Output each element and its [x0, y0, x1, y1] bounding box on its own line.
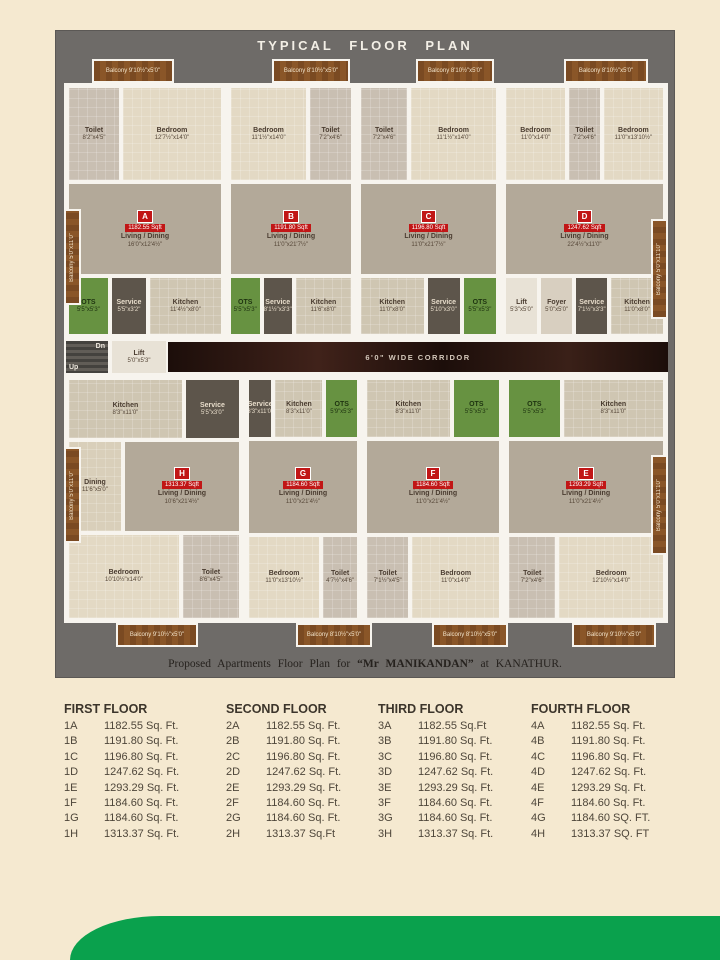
corridor: 6'0" WIDE CORRIDOR [168, 339, 668, 375]
balcony-bottom-e: Balcony 9'10½"x5'0" [572, 623, 656, 647]
room-dim: 11'0"x13'10½" [615, 135, 652, 142]
room-dim: 11'0"x13'10½" [265, 578, 302, 585]
room-name: Kitchen [601, 401, 627, 409]
room-dim: 8'1½"x3'3" [264, 307, 292, 314]
unit-g: Service3'3"x11'0" Kitchen8'3"x11'0" OTS5… [244, 375, 362, 623]
room-living-dining: G 1184.60 Sqft Living / Dining 11'0"x21'… [247, 439, 359, 535]
top-units-row: Toilet8'2"x4'5" Bedroom12'7½"x14'0" A 11… [64, 83, 668, 339]
room-name: Service [116, 299, 141, 307]
unit-f: Kitchen8'3"x11'0" OTS5'5"x5'3" F 1184.60… [362, 375, 504, 623]
floor-plan-panel: TYPICAL FLOOR PLAN Balcony 9'10½"x5'0" B… [55, 30, 675, 678]
stairs-up-label: Up [69, 364, 78, 371]
room-dim: 7'1½"x3'3" [578, 307, 606, 314]
unit-area: 1247.62 Sq. Ft. [266, 765, 378, 780]
unit-area-badge: 1184.60 Sqft [283, 481, 323, 489]
floor-table-title: FIRST FLOOR [64, 702, 226, 716]
unit-area: 1293.29 Sq. Ft. [418, 781, 531, 796]
unit-area: 1191.80 Sq. Ft. [266, 734, 378, 749]
unit-area: 1184.60 Sq. Ft. [418, 796, 531, 811]
room-bedroom: Bedroom12'10½"x14'0" [557, 535, 665, 620]
balcony-bottom-f: Balcony 8'10½"x5'0" [432, 623, 508, 647]
room-name: Living / Dining [562, 490, 610, 498]
unit-area: 1247.62 Sq. Ft. [104, 765, 226, 780]
balcony-top-d: Balcony 8'10½"x5'0" [564, 59, 648, 83]
unit-code: 3F [378, 796, 418, 811]
unit-code: 4D [531, 765, 571, 780]
room-kitchen: Kitchen8'3"x11'0" [365, 378, 452, 439]
plan-caption: Proposed Apartments Floor Plan for “Mr M… [56, 658, 674, 670]
room-dim: 7'2"x4'6" [521, 578, 544, 585]
room-bedroom: Bedroom12'7½"x14'0" [121, 86, 223, 182]
corridor-row: Dn Up Lift 5'0"x5'3" 6'0" WIDE CORRIDOR [64, 339, 668, 375]
floor-area-row: 4F1184.60 Sq. Ft. [531, 796, 676, 811]
floor-table-title: SECOND FLOOR [226, 702, 378, 716]
floor-table-second: SECOND FLOOR 2A1182.55 Sq. Ft.2B1191.80 … [226, 702, 378, 842]
room-dim: 8'6"x4'5" [200, 577, 223, 584]
floor-area-row: 1D1247.62 Sq. Ft. [64, 765, 226, 780]
unit-code: 2F [226, 796, 266, 811]
balcony-label: Balcony 8'10½"x5'0" [428, 68, 482, 75]
room-name: Bedroom [157, 127, 188, 135]
unit-area: 1313.37 Sq.Ft [266, 827, 378, 842]
unit-c: Toilet7'2"x4'6" Bedroom11'1½"x14'0" C 11… [356, 83, 501, 339]
room-name: Toilet [202, 569, 220, 577]
floor-area-row: 4G1184.60 SQ. FT. [531, 811, 676, 826]
unit-area-badge: 1293.29 Sqft [566, 481, 606, 489]
room-dim: 5'5"x5'3" [465, 409, 488, 416]
floor-area-tables: FIRST FLOOR 1A1182.55 Sq. Ft.1B1191.80 S… [64, 702, 676, 842]
room-dim: 10'6"x21'4½" [165, 499, 200, 506]
room-bedroom: Bedroom11'1½"x14'0" [229, 86, 308, 182]
room-lift: Lift 5'0"x5'3" [110, 339, 168, 375]
floor-area-row: 2G1184.60 Sq. Ft. [226, 811, 378, 826]
unit-area: 1184.60 Sq. Ft. [571, 796, 676, 811]
room-dim: 11'0"x14'0" [521, 135, 550, 142]
unit-code: 3D [378, 765, 418, 780]
caption-location: KANATHUR. [496, 658, 562, 670]
floor-area-row: 2D1247.62 Sq. Ft. [226, 765, 378, 780]
balcony-label: Balcony 8'10½"x5'0" [307, 632, 361, 639]
unit-area: 1196.80 Sq. Ft. [266, 750, 378, 765]
unit-b: Bedroom11'1½"x14'0" Toilet7'2"x4'6" B 11… [226, 83, 356, 339]
floor-area-row: 4H1313.37 SQ. FT [531, 827, 676, 842]
room-name: Kitchen [286, 401, 312, 409]
room-name: OTS [527, 401, 541, 409]
unit-code: 1H [64, 827, 104, 842]
room-name: Toilet [523, 570, 541, 578]
room-name: Bedroom [596, 570, 627, 578]
room-dim: 8'3"x11'0" [286, 409, 312, 416]
floor-area-row: 1E1293.29 Sq. Ft. [64, 781, 226, 796]
balcony-label: Balcony 5'0"x11'10" [656, 243, 663, 295]
room-name: Lift [134, 350, 145, 358]
unit-code: 1G [64, 811, 104, 826]
room-dim: 11'6"x5'0" [82, 487, 108, 494]
room-dim: 11'0"x21'7½" [274, 242, 308, 249]
room-name: Bedroom [520, 127, 551, 135]
room-dim: 11'0"x21'4½" [286, 499, 320, 506]
unit-area: 1184.60 Sq. Ft. [104, 811, 226, 826]
room-ots: OTS5'5"x5'3" [507, 378, 562, 439]
room-dim: 12'7½"x14'0" [155, 135, 190, 142]
floor-area-row: 3H1313.37 Sq. Ft. [378, 827, 531, 842]
floor-area-row: 2A1182.55 Sq. Ft. [226, 719, 378, 734]
unit-code: 2A [226, 719, 266, 734]
balcony-label: Balcony 8'10½"x5'0" [579, 68, 633, 75]
balcony-side-h: Balcony 5'0"x11'0" [64, 447, 81, 543]
room-name: Service [248, 401, 273, 409]
room-name: Toilet [575, 127, 593, 135]
unit-code: 2C [226, 750, 266, 765]
room-toilet: Toilet7'2"x4'6" [567, 86, 602, 182]
room-dim: 3'3"x11'0" [247, 409, 273, 416]
room-living-dining: A 1182.55 Sqft Living / Dining 16'0"x12'… [67, 182, 223, 276]
room-dim: 11'0"x21'4½" [416, 499, 450, 506]
brochure-page: { "title": "TYPICAL FLOOR PLAN", "captio… [0, 0, 720, 960]
room-name: Kitchen [624, 299, 650, 307]
room-toilet: Toilet7'2"x4'6" [308, 86, 353, 182]
unit-area: 1182.55 Sq. Ft. [104, 719, 226, 734]
room-dim: 11'1½"x14'0" [251, 135, 285, 142]
room-name: Living / Dining [267, 233, 315, 241]
balcony-top-c: Balcony 8'10½"x5'0" [416, 59, 494, 83]
unit-badge: E [578, 467, 593, 480]
room-toilet: Toilet7'2"x4'6" [507, 535, 557, 620]
unit-code: 1C [64, 750, 104, 765]
room-bedroom: Bedroom11'0"x13'10½" [602, 86, 665, 182]
room-name: Toilet [331, 570, 349, 578]
room-living-dining: F 1184.60 Sqft Living / Dining 11'0"x21'… [365, 439, 501, 535]
room-dim: 8'3"x11'0" [395, 409, 421, 416]
room-name: Bedroom [269, 570, 300, 578]
floor-area-row: 4E1293.29 Sq. Ft. [531, 781, 676, 796]
floor-area-row: 1F1184.60 Sq. Ft. [64, 796, 226, 811]
room-dim: 8'2"x4'5" [83, 135, 106, 142]
floor-table-fourth: FOURTH FLOOR 4A1182.55 Sq. Ft.4B1191.80 … [531, 702, 676, 842]
unit-area: 1184.60 Sq. Ft. [104, 796, 226, 811]
room-service: Service5'10"x3'0" [426, 276, 462, 336]
unit-area: 1191.80 Sq. Ft. [571, 734, 676, 749]
corridor-label: 6'0" WIDE CORRIDOR [365, 353, 470, 362]
room-name: OTS [469, 401, 483, 409]
room-name: Living / Dining [279, 490, 327, 498]
balcony-bottom-g: Balcony 8'10½"x5'0" [296, 623, 372, 647]
unit-area: 1184.60 Sq. Ft. [266, 811, 378, 826]
room-name: OTS [238, 299, 252, 307]
floor-plan-drawing: Balcony 9'10½"x5'0" Balcony 8'10½"x5'0" … [64, 59, 668, 649]
room-service: Service5'5"x3'2" [110, 276, 148, 336]
balcony-side-d: Balcony 5'0"x11'10" [651, 219, 668, 319]
unit-code: 3H [378, 827, 418, 842]
balcony-label: Balcony 9'10½"x5'0" [587, 632, 641, 639]
unit-area: 1182.55 Sq. Ft. [571, 719, 676, 734]
room-service: Service5'5"x3'0" [184, 378, 241, 440]
room-living-dining: D 1247.62 Sqft Living / Dining 22'4½"x11… [504, 182, 665, 276]
unit-area: 1293.29 Sq. Ft. [104, 781, 226, 796]
unit-area: 1182.55 Sq.Ft [418, 719, 531, 734]
floor-area-row: 3D1247.62 Sq. Ft. [378, 765, 531, 780]
floor-table-title: FOURTH FLOOR [531, 702, 676, 716]
room-name: Living / Dining [409, 490, 457, 498]
staircase: Dn Up [64, 339, 110, 375]
room-dim: 5'5"x5'3" [523, 409, 546, 416]
room-name: Bedroom [109, 569, 140, 577]
unit-code: 3G [378, 811, 418, 826]
unit-area: 1247.62 Sq. Ft. [418, 765, 531, 780]
floor-area-row: 3B1191.80 Sq. Ft. [378, 734, 531, 749]
unit-area: 1196.80 Sq. Ft. [571, 750, 676, 765]
floor-area-row: 1B1191.80 Sq. Ft. [64, 734, 226, 749]
room-living-dining: C 1196.80 Sqft Living / Dining 11'0"x21'… [359, 182, 498, 276]
unit-area: 1191.80 Sq. Ft. [104, 734, 226, 749]
plan-title: TYPICAL FLOOR PLAN [56, 38, 674, 53]
unit-area: 1313.37 Sq. Ft. [418, 827, 531, 842]
unit-code: 1E [64, 781, 104, 796]
room-bedroom: Bedroom11'0"x14'0" [410, 535, 501, 620]
room-dim: 22'4½"x11'0" [567, 242, 601, 249]
room-dim: 5'5"x5'3" [468, 307, 491, 314]
room-ots: OTS5'9"x5'3" [324, 378, 359, 439]
room-foyer: Foyer5'0"x5'0" [539, 276, 574, 336]
unit-code: 2G [226, 811, 266, 826]
unit-badge: C [421, 210, 437, 223]
room-name: Service [265, 299, 290, 307]
room-toilet: Toilet8'6"x4'5" [181, 533, 241, 620]
room-kitchen: Kitchen8'3"x11'0" [562, 378, 665, 439]
unit-e: OTS5'5"x5'3" Kitchen8'3"x11'0" E 1293.29… [504, 375, 668, 623]
room-ots: OTS5'5"x5'3" [452, 378, 501, 439]
balcony-top-b: Balcony 8'10½"x5'0" [272, 59, 350, 83]
balcony-label: Balcony 5'0"x11'10" [656, 479, 663, 531]
room-kitchen: Kitchen11'4½"x8'0" [148, 276, 223, 336]
room-dim: 7'2"x4'6" [319, 135, 342, 142]
room-ots: OTS5'5"x5'3" [462, 276, 498, 336]
room-dim: 8'3"x11'0" [113, 410, 139, 417]
unit-area: 1196.80 Sq. Ft. [104, 750, 226, 765]
floor-area-row: 4A1182.55 Sq. Ft. [531, 719, 676, 734]
room-dim: 11'4½"x8'0" [170, 307, 201, 314]
room-name: Kitchen [173, 299, 199, 307]
caption-client-name: “Mr MANIKANDAN” [357, 658, 474, 670]
room-name: Lift [516, 299, 527, 307]
unit-code: 4B [531, 734, 571, 749]
unit-code: 3A [378, 719, 418, 734]
room-name: Toilet [85, 127, 103, 135]
room-dim: 11'0"x21'7½" [411, 242, 445, 249]
room-name: OTS [81, 299, 95, 307]
unit-code: 4C [531, 750, 571, 765]
unit-code: 4A [531, 719, 571, 734]
unit-code: 4G [531, 811, 571, 826]
floor-area-row: 4B1191.80 Sq. Ft. [531, 734, 676, 749]
unit-area: 1247.62 Sq. Ft. [571, 765, 676, 780]
room-kitchen: Kitchen8'3"x11'0" [273, 378, 324, 439]
floor-area-row: 4C1196.80 Sq. Ft. [531, 750, 676, 765]
unit-code: 1D [64, 765, 104, 780]
room-name: OTS [473, 299, 487, 307]
unit-code: 3B [378, 734, 418, 749]
unit-code: 4F [531, 796, 571, 811]
room-service: Service3'3"x11'0" [247, 378, 273, 439]
room-kitchen: Kitchen11'0"x8'0" [359, 276, 426, 336]
room-kitchen: Kitchen11'6"x8'0" [294, 276, 353, 336]
balcony-label: Balcony 8'10½"x5'0" [443, 632, 497, 639]
unit-area-badge: 1184.60 Sqft [413, 481, 453, 489]
unit-badge: D [577, 210, 593, 223]
room-dim: 5'5"x3'0" [201, 410, 224, 417]
room-toilet: Toilet7'2"x4'6" [359, 86, 409, 182]
room-lift: Lift5'3"x5'0" [504, 276, 539, 336]
floor-area-row: 3F1184.60 Sq. Ft. [378, 796, 531, 811]
unit-area-badge: 1196.80 Sqft [409, 224, 449, 232]
unit-area-badge: 1247.62 Sqft [564, 224, 604, 232]
green-footer-band [70, 916, 720, 960]
balcony-top-a: Balcony 9'10½"x5'0" [92, 59, 174, 83]
unit-area: 1182.55 Sq. Ft. [266, 719, 378, 734]
room-toilet: Toilet4'7½"x4'6" [321, 535, 359, 620]
unit-code: 4E [531, 781, 571, 796]
floor-area-row: 2B1191.80 Sq. Ft. [226, 734, 378, 749]
unit-area: 1313.37 Sq. Ft. [104, 827, 226, 842]
room-dim: 5'5"x3'2" [117, 307, 140, 314]
unit-badge: A [137, 210, 153, 223]
room-service: Service8'1½"x3'3" [262, 276, 295, 336]
floor-area-row: 1H1313.37 Sq. Ft. [64, 827, 226, 842]
balcony-bottom-h: Balcony 9'10½"x5'0" [116, 623, 198, 647]
floor-area-row: 3C1196.80 Sq. Ft. [378, 750, 531, 765]
bottom-units-row: Kitchen8'3"x11'0" Service5'5"x3'0" Dinin… [64, 375, 668, 623]
floor-area-row: 3E1293.29 Sq. Ft. [378, 781, 531, 796]
balcony-side-a: Balcony 5'0"x11'0" [64, 209, 81, 305]
room-name: OTS [335, 401, 349, 409]
unit-code: 3C [378, 750, 418, 765]
unit-badge: H [174, 467, 190, 480]
caption-connector: at [481, 658, 489, 670]
room-dim: 7'2"x4'6" [573, 135, 596, 142]
room-name: Foyer [547, 299, 566, 307]
room-dim: 5'3"x5'0" [510, 307, 533, 314]
unit-area-badge: 1191.80 Sqft [271, 224, 311, 232]
room-name: Dining [84, 479, 106, 487]
floor-area-row: 1C1196.80 Sq. Ft. [64, 750, 226, 765]
unit-badge: B [283, 210, 299, 223]
floor-area-row: 2E1293.29 Sq. Ft. [226, 781, 378, 796]
balcony-label: Balcony 8'10½"x5'0" [284, 68, 338, 75]
unit-code: 1A [64, 719, 104, 734]
floor-area-row: 2H1313.37 Sq.Ft [226, 827, 378, 842]
room-living-dining: E 1293.29 Sqft Living / Dining 11'0"x21'… [507, 439, 665, 535]
unit-a: Toilet8'2"x4'5" Bedroom12'7½"x14'0" A 11… [64, 83, 226, 339]
unit-d: Bedroom11'0"x14'0" Toilet7'2"x4'6" Bedro… [501, 83, 668, 339]
room-service: Service7'1½"x3'3" [574, 276, 609, 336]
unit-code: 1F [64, 796, 104, 811]
room-toilet: Toilet7'1½"x4'5" [365, 535, 410, 620]
room-dim: 16'0"x12'4½" [128, 242, 163, 249]
room-toilet: Toilet8'2"x4'5" [67, 86, 121, 182]
room-dim: 5'10"x3'0" [431, 307, 457, 314]
unit-h: Kitchen8'3"x11'0" Service5'5"x3'0" Dinin… [64, 375, 244, 623]
room-name: Kitchen [379, 299, 405, 307]
room-ots: OTS5'5"x5'3" [229, 276, 262, 336]
unit-area: 1184.60 Sq. Ft. [266, 796, 378, 811]
floor-area-row: 3G1184.60 Sq. Ft. [378, 811, 531, 826]
unit-area-badge: 1182.55 Sqft [125, 224, 165, 232]
room-dim: 10'10½"x14'0" [105, 577, 143, 584]
floor-area-row: 1A1182.55 Sq. Ft. [64, 719, 226, 734]
room-dim: 12'10½"x14'0" [592, 578, 630, 585]
unit-area: 1293.29 Sq. Ft. [266, 781, 378, 796]
unit-code: 2H [226, 827, 266, 842]
room-name: Bedroom [440, 570, 471, 578]
room-dim: 11'0"x8'0" [624, 307, 650, 314]
balcony-side-e: Balcony 5'0"x11'10" [651, 455, 668, 555]
room-name: Living / Dining [121, 233, 169, 241]
unit-code: 2D [226, 765, 266, 780]
floor-table-first: FIRST FLOOR 1A1182.55 Sq. Ft.1B1191.80 S… [64, 702, 226, 842]
room-dim: 11'0"x14'0" [441, 578, 470, 585]
floor-table-third: THIRD FLOOR 3A1182.55 Sq.Ft3B1191.80 Sq.… [378, 702, 531, 842]
unit-area: 1191.80 Sq. Ft. [418, 734, 531, 749]
balcony-label: Balcony 9'10½"x5'0" [106, 68, 160, 75]
room-dim: 8'3"x11'0" [600, 409, 626, 416]
floor-area-row: 4D1247.62 Sq. Ft. [531, 765, 676, 780]
room-name: Toilet [321, 127, 339, 135]
room-kitchen: Kitchen8'3"x11'0" [67, 378, 184, 440]
room-living-dining: H 1313.37 Sqft Living / Dining 10'6"x21'… [123, 440, 241, 533]
room-name: Living / Dining [404, 233, 452, 241]
room-name: Service [431, 299, 456, 307]
caption-prefix: Proposed Apartments Floor Plan for [168, 658, 350, 670]
room-name: Bedroom [618, 127, 649, 135]
unit-code: 2B [226, 734, 266, 749]
room-name: Bedroom [438, 127, 469, 135]
room-dim: 5'0"x5'3" [128, 358, 151, 365]
room-name: Service [579, 299, 604, 307]
unit-code: 4H [531, 827, 571, 842]
room-name: Toilet [379, 570, 397, 578]
floor-area-row: 3A1182.55 Sq.Ft [378, 719, 531, 734]
room-bedroom: Bedroom11'1½"x14'0" [409, 86, 498, 182]
room-bedroom: Bedroom11'0"x13'10½" [247, 535, 321, 620]
unit-area: 1313.37 SQ. FT [571, 827, 676, 842]
unit-area: 1184.60 SQ. FT. [571, 811, 676, 826]
room-dim: 5'0"x5'0" [545, 307, 568, 314]
floor-area-row: 2C1196.80 Sq. Ft. [226, 750, 378, 765]
room-name: Kitchen [113, 402, 139, 410]
room-dim: 11'0"x21'4½" [569, 499, 603, 506]
room-name: Toilet [375, 127, 393, 135]
stairs-dn-label: Dn [96, 343, 105, 350]
unit-area: 1184.60 Sq. Ft. [418, 811, 531, 826]
room-dim: 11'6"x8'0" [311, 307, 337, 314]
unit-area-badge: 1313.37 Sqft [162, 481, 202, 489]
unit-code: 3E [378, 781, 418, 796]
unit-badge: F [426, 467, 441, 480]
room-name: Bedroom [253, 127, 284, 135]
room-dim: 4'7½"x4'6" [326, 578, 354, 585]
room-dim: 11'0"x8'0" [379, 307, 405, 314]
unit-code: 1B [64, 734, 104, 749]
room-bedroom: Bedroom10'10½"x14'0" [67, 533, 181, 620]
room-dim: 5'9"x5'3" [330, 409, 353, 416]
room-name: Living / Dining [560, 233, 608, 241]
unit-code: 2E [226, 781, 266, 796]
room-name: Kitchen [311, 299, 337, 307]
balcony-label: Balcony 9'10½"x5'0" [130, 632, 184, 639]
unit-badge: G [295, 467, 311, 480]
room-dim: 7'1½"x4'5" [374, 578, 402, 585]
room-dim: 7'2"x4'6" [373, 135, 396, 142]
